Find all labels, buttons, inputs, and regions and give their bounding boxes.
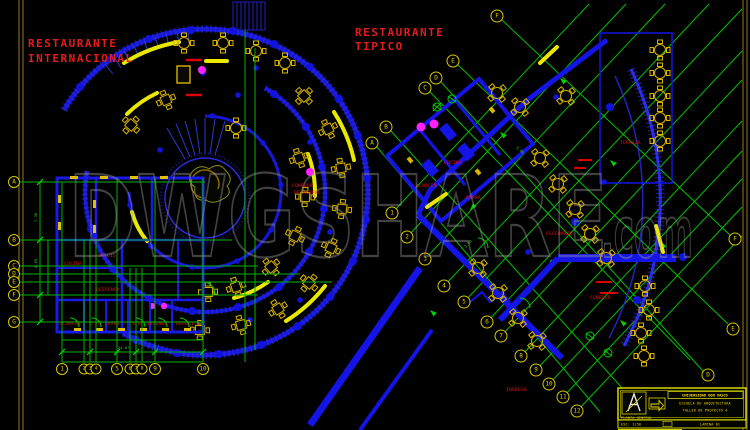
dim-text: 7.38 bbox=[33, 212, 38, 222]
grid-bubble-1: 1 bbox=[60, 366, 64, 373]
room-label: COMEDOR bbox=[590, 295, 611, 301]
grid-bubble-D-right: D bbox=[706, 372, 710, 379]
cad-canvas: COCINA OFICIO DESPENSA ALMACEN S.H. DAMA… bbox=[0, 0, 750, 430]
grid-bubble-E: E bbox=[451, 58, 455, 65]
grid-bubble-8: 8 bbox=[519, 353, 523, 360]
room-label: TERRAZA bbox=[620, 140, 641, 146]
grid-bubble-12: 12 bbox=[573, 408, 581, 415]
grid-bubble-5: 5 bbox=[115, 366, 119, 373]
grid-bubble-B: B bbox=[12, 237, 16, 244]
grid-bubble-D: D bbox=[434, 75, 438, 82]
host-stand bbox=[177, 66, 190, 83]
grid-bubble-B: B bbox=[384, 124, 388, 131]
grid-bubble-10: 10 bbox=[199, 366, 207, 373]
grid-bubble-9: 9 bbox=[534, 367, 538, 374]
title-block-line1: UNIVERSIDAD DON VASCO bbox=[682, 394, 727, 398]
grid-bubble-4: 4 bbox=[95, 366, 98, 372]
title-block: UNIVERSIDAD DON VASCO ESCUELA DE ARQUITE… bbox=[618, 388, 746, 430]
title-block-line3: TALLER DE PROYECTO 4 bbox=[683, 409, 728, 413]
drawing: COCINA OFICIO DESPENSA ALMACEN S.H. DAMA… bbox=[0, 0, 750, 430]
left-grid-letter-bubbles: A B C D E F G bbox=[9, 177, 20, 328]
grid-bubble-6: 6 bbox=[485, 319, 489, 326]
grid-bubble-10: 10 bbox=[545, 381, 553, 388]
left-grid-number-bubbles: 1 2 3 4 5 6 7 8 9 10 bbox=[57, 364, 209, 375]
title-block-line2: ESCUELA DE ARQUITECTURA bbox=[679, 402, 731, 406]
watermark: DWGSHARE .com bbox=[68, 153, 693, 283]
room-label: INGRESO bbox=[506, 387, 527, 393]
watermark-text: DWGSHARE bbox=[68, 153, 608, 283]
grid-bubble-E-right: E bbox=[731, 326, 735, 333]
title-block-bottom: PLANTA GENERAL bbox=[621, 416, 652, 420]
stage-hatch bbox=[233, 2, 265, 30]
grid-bubble-A: A bbox=[12, 179, 16, 186]
title-block-scale: ESC: 1/50 bbox=[621, 423, 641, 427]
grid-bubble-F: F bbox=[12, 292, 16, 299]
grid-bubble-F: F bbox=[495, 13, 499, 20]
grid-bubble-G: G bbox=[12, 319, 16, 326]
left-plan-title-line1: RESTAURANTE bbox=[28, 37, 117, 50]
room-label: DESPENSA bbox=[96, 287, 120, 293]
grid-bubble-4: 4 bbox=[442, 283, 446, 290]
grid-bubble-8: 8 bbox=[141, 366, 144, 372]
grid-bubble-E: E bbox=[12, 279, 16, 286]
right-plan-title-line1: RESTAURANTE bbox=[355, 26, 444, 39]
left-plan-title-line2: INTERNACIONAL bbox=[28, 52, 134, 65]
grid-bubble-C: C bbox=[423, 85, 427, 92]
title-block-sheet: LAMINA 01 bbox=[700, 423, 720, 427]
right-plan-title-line2: TIPICO bbox=[355, 40, 404, 53]
grid-bubble-7: 7 bbox=[499, 333, 503, 340]
grid-bubble-9: 9 bbox=[153, 366, 157, 373]
grid-bubble-A: A bbox=[370, 140, 374, 147]
grid-bubble-F-right: F bbox=[733, 236, 737, 243]
grid-bubble-11: 11 bbox=[559, 394, 567, 401]
dim-text: 24.67 bbox=[118, 345, 129, 350]
dim-text: 4.05 bbox=[33, 259, 38, 268]
grid-bubble-5: 5 bbox=[462, 299, 466, 306]
watermark-suffix: .com bbox=[601, 192, 693, 274]
